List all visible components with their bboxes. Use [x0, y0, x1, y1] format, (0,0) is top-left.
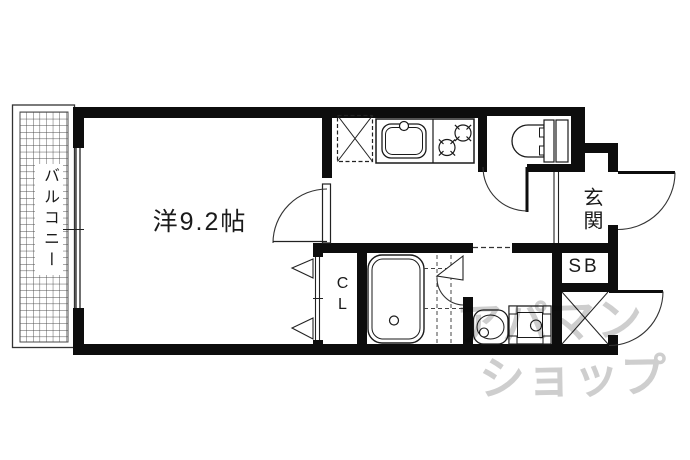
bathtub: [368, 255, 424, 343]
shoe-box-label: SB: [560, 256, 608, 278]
balcony-label: バルコニー: [35, 164, 63, 275]
toilet: [512, 120, 568, 162]
entrance-label: 玄関: [577, 187, 606, 233]
watermark-line2: ショップ: [478, 339, 667, 408]
main-room-label: 洋9.2帖: [125, 202, 275, 238]
refrigerator-space: [338, 116, 373, 162]
room-door: [273, 184, 331, 243]
closet-doors: [292, 257, 323, 340]
toilet-door: [483, 167, 529, 212]
entrance-door: [618, 171, 675, 230]
entrance-step: [554, 172, 559, 243]
closet-label: CL: [333, 275, 351, 317]
floor-plan: 洋9.2帖 バルコニー 玄関 SB CL アパマン ショップ: [0, 0, 690, 460]
